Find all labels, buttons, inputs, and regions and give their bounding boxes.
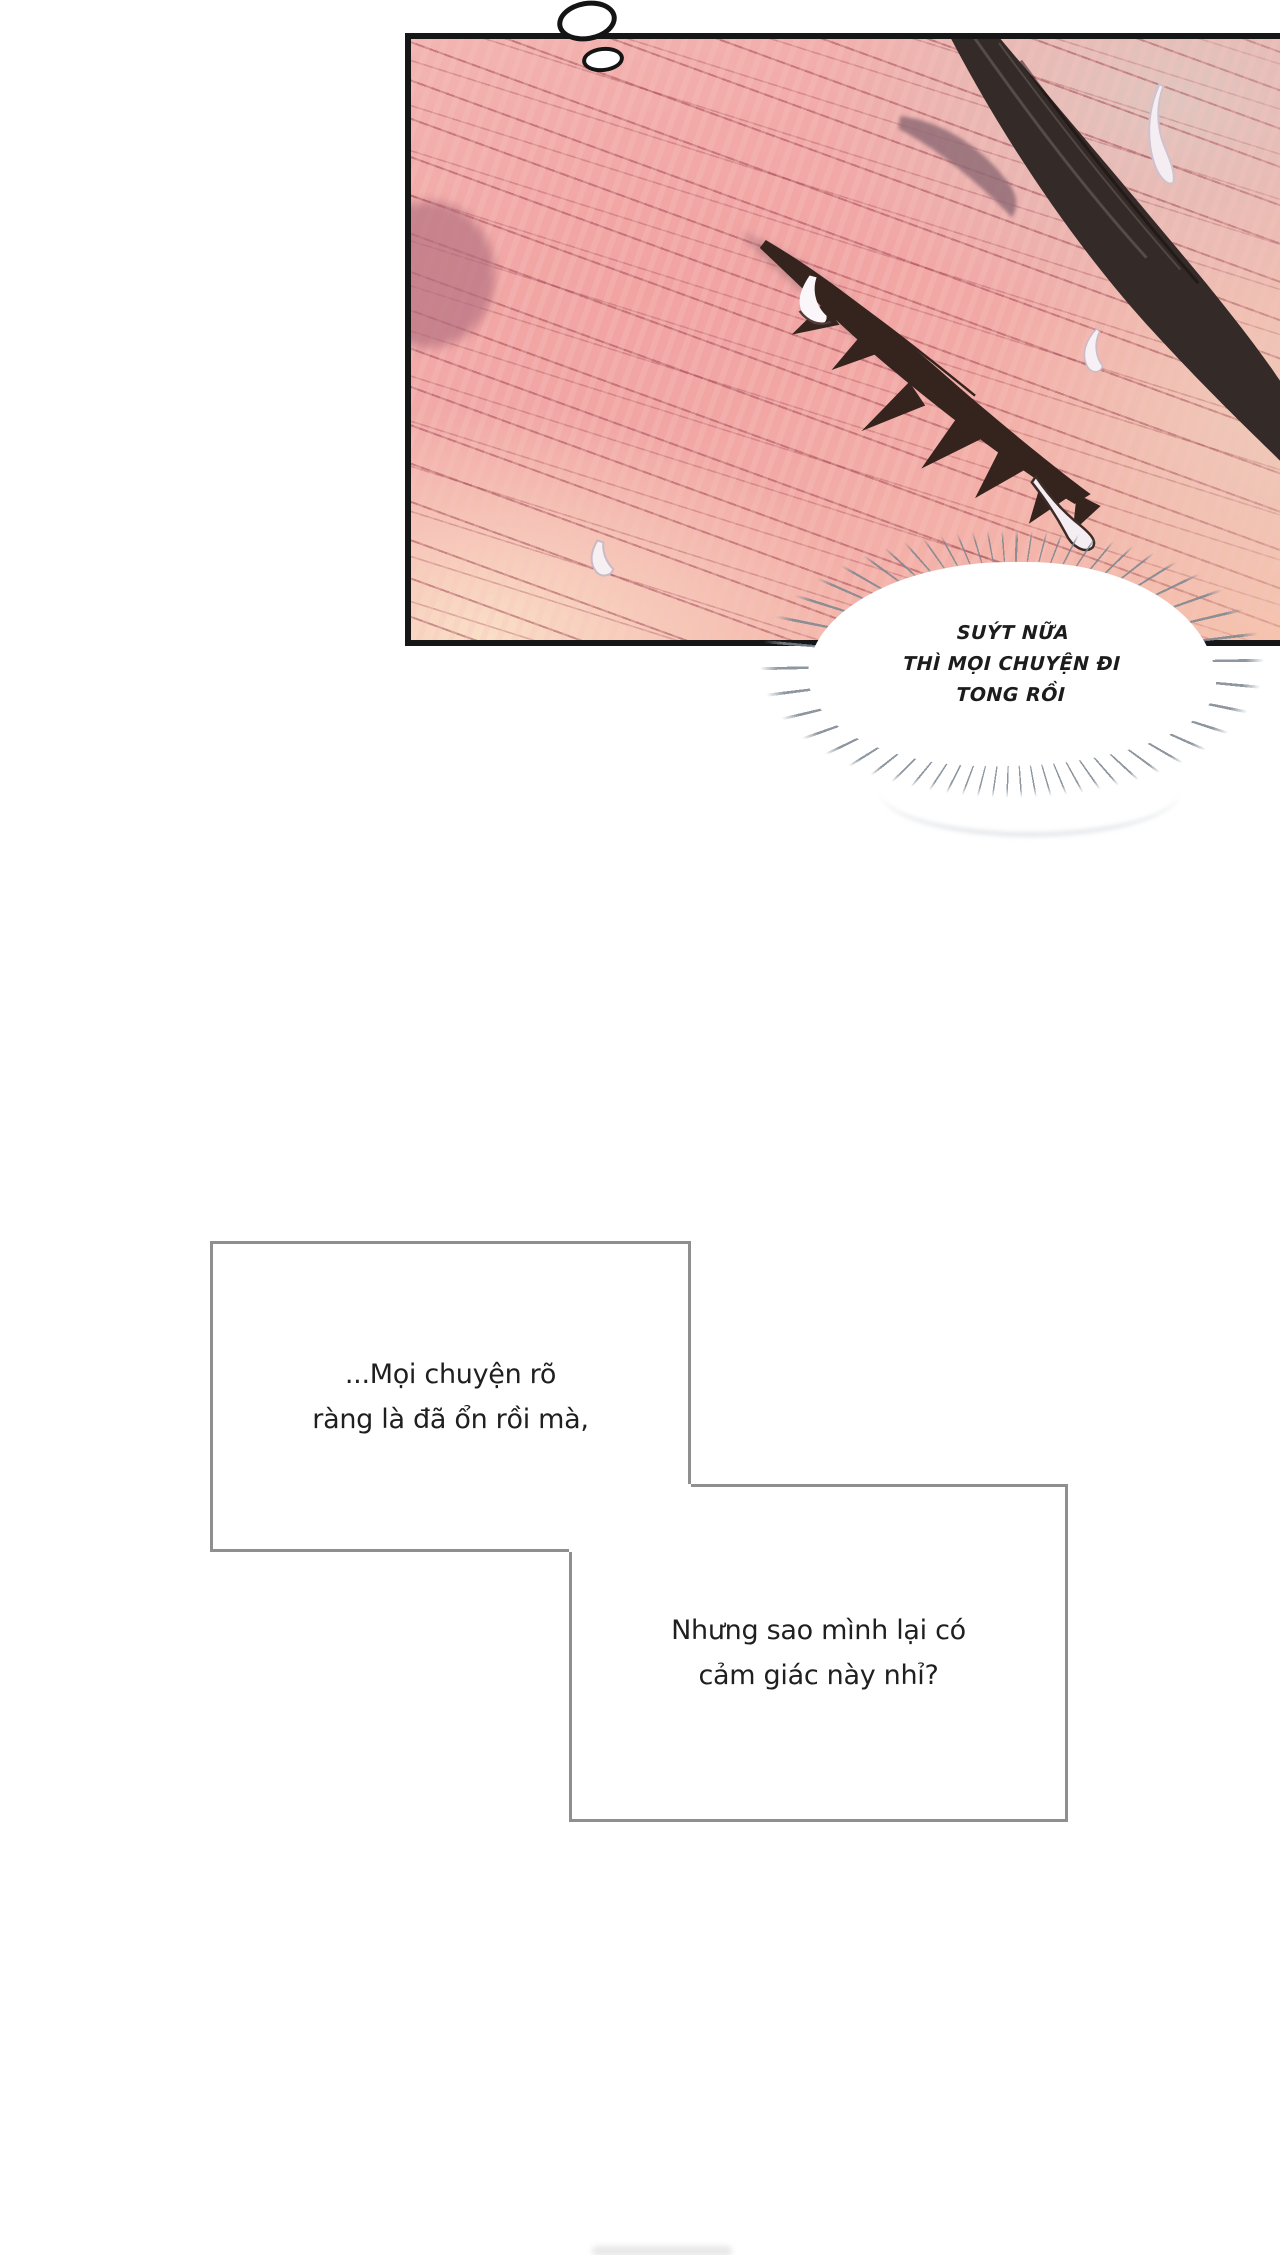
closed-eye-lashes: [740, 232, 1101, 532]
hair-strand: [947, 39, 1280, 463]
sweat-drop-cheek: [1084, 329, 1102, 372]
caption-box-2-text: Nhưng sao mình lại có cảm giác này nhỉ?: [671, 1608, 966, 1698]
burst-speech-bubble: SUÝT NỮA THÌ MỌI CHUYỆN ĐI TONG RỒI: [752, 526, 1272, 802]
burst-line-1: SUÝT NỮA: [956, 618, 1070, 649]
comic-page: SUÝT NỮA THÌ MỌI CHUYỆN ĐI TONG RỒI ...M…: [0, 0, 1280, 2255]
caption-overlap-join: [569, 1484, 691, 1552]
burst-line-3: TONG RỒI: [956, 680, 1066, 711]
caption-box-1-text: ...Mọi chuyện rõ ràng là đã ổn rồi mà,: [312, 1352, 588, 1442]
caption-2-line-2: cảm giác này nhỉ?: [671, 1653, 966, 1698]
burst-line-2: THÌ MỌI CHUYỆN ĐI: [903, 649, 1122, 680]
caption-1-line-2: ràng là đã ổn rồi mà,: [312, 1397, 588, 1442]
sweat-drop-bottom: [592, 540, 614, 575]
burst-bubble-text: SUÝT NỮA THÌ MỌI CHUYỆN ĐI TONG RỒI: [747, 526, 1277, 802]
sweat-drop-top-right: [1149, 84, 1174, 183]
caption-2-line-1: Nhưng sao mình lại có: [671, 1608, 966, 1653]
caption-1-line-1: ...Mọi chuyện rõ: [312, 1352, 588, 1397]
eyebrow: [898, 116, 1016, 217]
cropped-watermark-smudge: [592, 2246, 732, 2255]
